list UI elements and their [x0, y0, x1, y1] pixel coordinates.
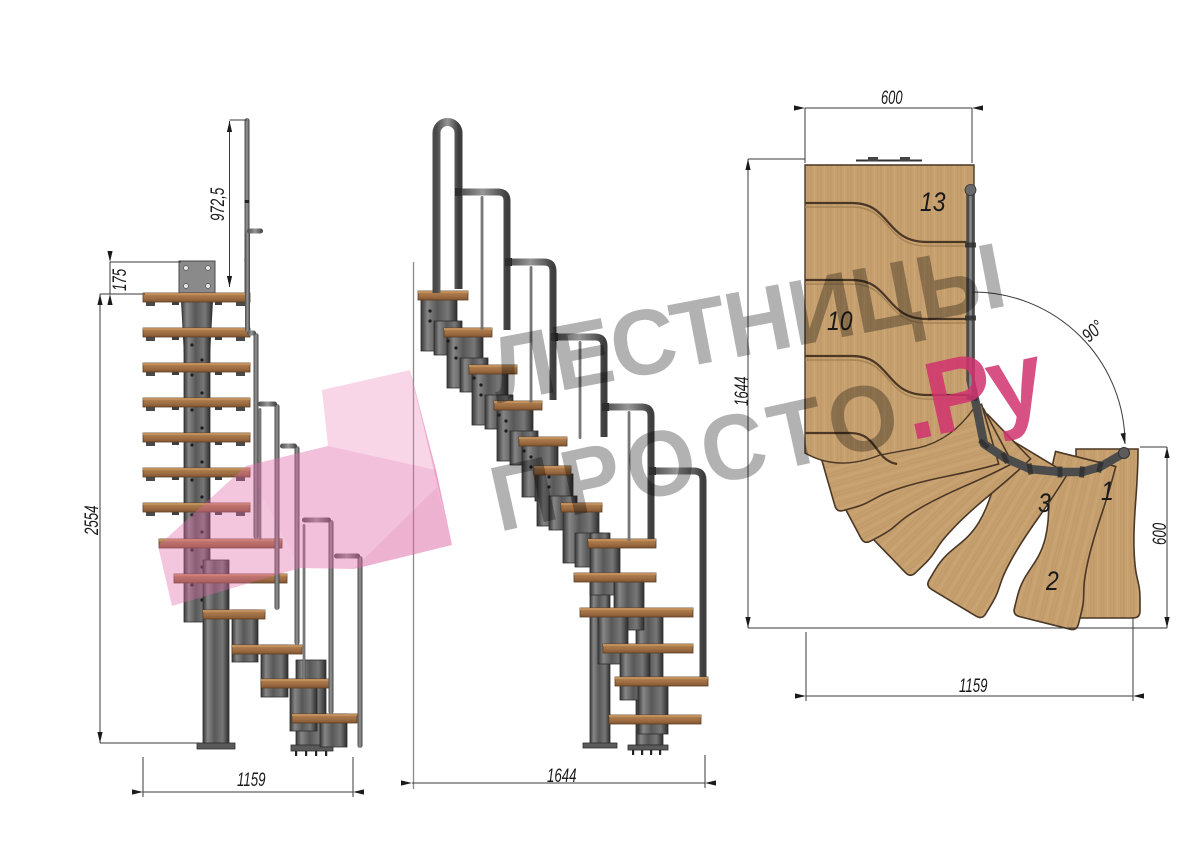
svg-text:600: 600 — [881, 88, 903, 109]
svg-text:1159: 1159 — [237, 770, 266, 791]
svg-text:2554: 2554 — [82, 505, 103, 535]
svg-text:1159: 1159 — [959, 676, 988, 697]
svg-text:175: 175 — [110, 268, 131, 291]
svg-text:2: 2 — [1045, 566, 1059, 596]
svg-text:972,5: 972,5 — [208, 187, 229, 221]
svg-text:13: 13 — [920, 187, 946, 217]
svg-text:3: 3 — [1038, 488, 1051, 518]
svg-text:1: 1 — [1101, 476, 1114, 506]
svg-text:600: 600 — [1150, 523, 1171, 545]
svg-text:1644: 1644 — [547, 766, 577, 787]
